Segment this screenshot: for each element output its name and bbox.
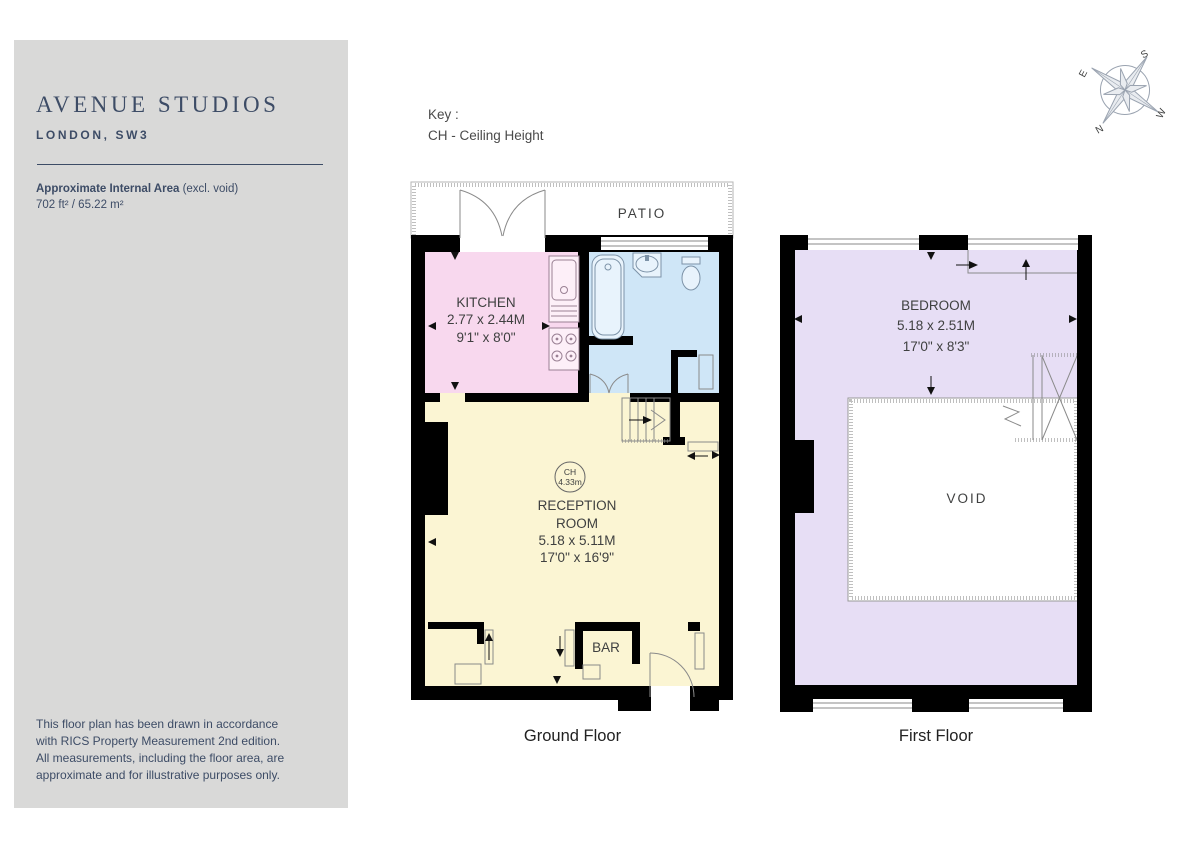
void-area: VOID <box>848 398 1079 601</box>
plan-key: Key : CH - Ceiling Height <box>428 104 544 146</box>
floorplan-page: AVENUE STUDIOS LONDON, SW3 Approximate I… <box>0 0 1200 848</box>
disclaimer: This floor plan has been drawn in accord… <box>36 716 322 784</box>
ground-floor-caption: Ground Floor <box>405 727 740 746</box>
area-value: 702 ft² / 65.22 m² <box>36 199 124 211</box>
void-label: VOID <box>946 491 987 506</box>
first-floor-caption: First Floor <box>775 727 1097 746</box>
reception-label-2: ROOM <box>556 516 598 531</box>
patio-area: PATIO <box>411 182 733 238</box>
key-entry: CH - Ceiling Height <box>428 125 544 146</box>
ch-value: 4.33m <box>558 477 582 487</box>
disclaimer-line: This floor plan has been drawn in accord… <box>36 716 322 733</box>
sidebar: AVENUE STUDIOS LONDON, SW3 Approximate I… <box>14 40 348 808</box>
disclaimer-line: with RICS Property Measurement 2nd editi… <box>36 733 322 750</box>
first-floor-plan: VOID <box>775 228 1097 720</box>
ch-label: CH <box>564 467 576 477</box>
kitchen-imperial: 9'1" x 8'0" <box>456 330 515 345</box>
compass-east-label: E <box>1077 68 1090 79</box>
sidebar-divider <box>37 164 323 165</box>
reception-label-1: RECEPTION <box>538 498 617 513</box>
compass-rose: S E W N <box>1068 34 1188 154</box>
kitchen-metric: 2.77 x 2.44M <box>447 312 525 327</box>
bedroom-label: BEDROOM <box>901 298 971 313</box>
area-label: Approximate Internal Area <box>36 183 179 195</box>
compass-west-label: W <box>1155 107 1169 121</box>
property-location: LONDON, SW3 <box>36 128 324 142</box>
bathroom-window <box>601 237 708 250</box>
kitchen-label: KITCHEN <box>456 295 515 310</box>
property-title: AVENUE STUDIOS <box>36 92 324 118</box>
internal-area: Approximate Internal Area (excl. void) 7… <box>36 181 324 213</box>
area-note: (excl. void) <box>179 183 238 195</box>
toilet <box>682 257 700 290</box>
disclaimer-line: approximate and for illustrative purpose… <box>36 767 322 784</box>
key-title: Key : <box>428 104 544 125</box>
reception-metric: 5.18 x 5.11M <box>538 533 615 548</box>
ground-floor-plan: PATIO <box>405 178 740 713</box>
bedroom-imperial: 17'0" x 8'3" <box>903 339 970 354</box>
reception-imperial: 17'0" x 16'9" <box>540 550 614 565</box>
kitchen-sink-unit <box>549 256 579 322</box>
kitchen-hob <box>549 328 579 370</box>
bedroom-metric: 5.18 x 2.51M <box>897 318 975 333</box>
bathtub <box>592 255 624 339</box>
compass-south-label: S <box>1139 48 1151 61</box>
bar-label: BAR <box>592 640 620 655</box>
disclaimer-line: All measurements, including the floor ar… <box>36 750 322 767</box>
compass-north-label: N <box>1094 123 1106 136</box>
patio-label: PATIO <box>618 206 667 221</box>
